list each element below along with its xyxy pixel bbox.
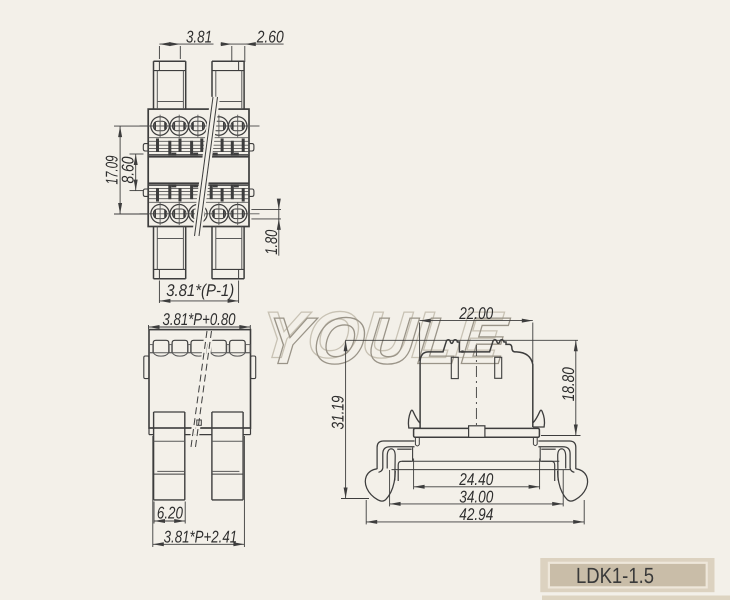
svg-text:1.80: 1.80	[262, 229, 281, 254]
svg-text:3.81*P+2.41: 3.81*P+2.41	[164, 528, 238, 547]
svg-text:18.80: 18.80	[559, 367, 578, 401]
svg-text:LDK1-1.5: LDK1-1.5	[576, 563, 654, 588]
svg-text:2.60: 2.60	[256, 27, 284, 46]
svg-text:8.60: 8.60	[118, 156, 137, 183]
svg-text:34.00: 34.00	[459, 487, 493, 506]
svg-text:3.81*(P-1): 3.81*(P-1)	[166, 281, 234, 300]
svg-text:6.20: 6.20	[157, 504, 183, 523]
svg-text:31.19: 31.19	[329, 395, 348, 429]
svg-text:42.94: 42.94	[459, 505, 493, 524]
svg-text:3.81: 3.81	[186, 27, 212, 46]
svg-text:3.81*P+0.80: 3.81*P+0.80	[163, 310, 236, 329]
svg-text:22.00: 22.00	[458, 304, 493, 323]
